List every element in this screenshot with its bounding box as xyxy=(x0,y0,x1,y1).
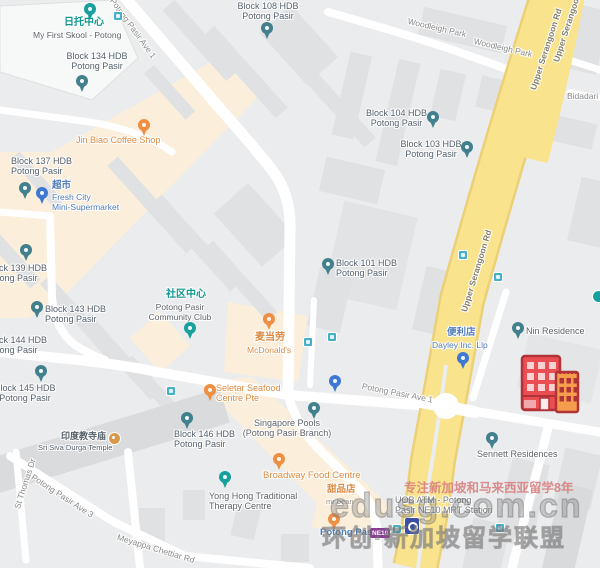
poi-fresh-city-cjk[interactable]: 超市 xyxy=(52,181,71,191)
pin-broadway-food-centre[interactable] xyxy=(273,453,285,465)
label-block-143[interactable]: Block 143 HDBPotong Pasir xyxy=(45,304,106,324)
pin-jin-biao-coffee-shop[interactable] xyxy=(138,119,150,131)
bus-stop-icon-2[interactable] xyxy=(458,250,468,260)
pin-community-club[interactable] xyxy=(184,322,196,334)
building-icon xyxy=(516,350,580,416)
poi-fresh-city-line1[interactable]: Fresh City xyxy=(52,192,91,202)
pin-my-first-skool[interactable] xyxy=(84,3,96,15)
poi-seletar-seafood[interactable]: Seletar SeafoodCentre Pte xyxy=(216,383,281,403)
bus-stop-icon-6[interactable] xyxy=(327,332,337,342)
label-block-146[interactable]: Block 146 HDBPotong Pasir xyxy=(174,429,235,449)
poi-jin-biao-coffee-shop[interactable]: Jin Biao Coffee Shop xyxy=(76,135,160,145)
poi-first-skool-name[interactable]: My First Skool - Potong xyxy=(33,30,121,40)
pin-block-108[interactable] xyxy=(261,22,273,34)
poi-broadway-food-centre[interactable]: Broadway Food Centre xyxy=(263,471,361,481)
pin-block-101[interactable] xyxy=(322,258,334,270)
bus-stop-icon-3[interactable] xyxy=(493,272,503,282)
poi-singapore-pools[interactable]: Singapore Pools(Potong Pasir Branch) xyxy=(241,418,333,438)
label-block-139[interactable]: Block 139 HDBPotong Pasir xyxy=(0,263,47,283)
poi-dayley-name[interactable]: Dayley Inc. Llp xyxy=(432,340,488,350)
pin-block-137[interactable] xyxy=(19,182,31,194)
label-block-144[interactable]: Block 144 HDBPotong Pasir xyxy=(0,335,47,355)
pin-fresh-city-supermarket[interactable] xyxy=(36,187,48,199)
pin-block-104[interactable] xyxy=(427,111,439,123)
poi-temple-cjk[interactable]: 印度教寺庙 xyxy=(61,431,106,441)
pin-dayley-convenience-store[interactable] xyxy=(457,352,469,364)
pin-seletar-seafood[interactable] xyxy=(204,384,216,396)
label-block-137[interactable]: Block 137 HDBPotong Pasir xyxy=(11,156,72,176)
poi-dayley-cjk[interactable]: 便利店 xyxy=(447,328,476,338)
watermark-domain: edusg.com.cn xyxy=(330,490,583,522)
bus-stop-icon-5[interactable] xyxy=(303,337,313,347)
poi-community-club-name[interactable]: Potong PasirCommunity Club xyxy=(145,302,215,322)
poi-temple-name[interactable]: Sri Siva Durga Temple xyxy=(38,443,112,453)
label-block-104[interactable]: Block 104 HDBPotong Pasir xyxy=(365,108,428,128)
pin-block-143[interactable] xyxy=(31,301,43,313)
label-block-103[interactable]: Block 103 HDBPotong Pasir xyxy=(400,139,462,159)
bus-stop-icon-4[interactable] xyxy=(166,386,176,396)
poi-sennett-residences[interactable]: Sennett Residences xyxy=(477,449,558,459)
map-canvas[interactable]: Potong Pasir Ave 1 Potong Pasir Ave 1 Wo… xyxy=(0,0,600,568)
pin-block-103[interactable] xyxy=(461,141,473,153)
pin-block-146[interactable] xyxy=(181,412,193,424)
poi-first-skool-cjk[interactable]: 日托中心 xyxy=(64,18,104,28)
pin-block-139[interactable] xyxy=(20,244,32,256)
watermark-brand: 环创·新加坡留学联盟 xyxy=(322,526,566,552)
pin-yong-hong-therapy[interactable] xyxy=(219,471,231,483)
label-block-134[interactable]: Block 134 HDBPotong Pasir xyxy=(66,51,128,71)
pin-block-134[interactable] xyxy=(76,75,88,87)
pin-mcdonalds[interactable] xyxy=(263,313,275,325)
property-building-marker[interactable] xyxy=(516,350,580,421)
pin-edge-partial[interactable] xyxy=(592,290,600,303)
label-block-108[interactable]: Block 108 HDBPotong Pasir xyxy=(236,1,300,21)
poi-yong-hong-therapy[interactable]: Yong Hong TraditionalTherapy Centre xyxy=(209,491,297,511)
poi-fresh-city-line2[interactable]: Mini-Supermarket xyxy=(52,202,119,212)
road-label-bidadari-park: Bidadari Pa xyxy=(567,91,600,101)
pin-nin-residence[interactable] xyxy=(512,322,524,334)
poi-community-club-cjk[interactable]: 社区中心 xyxy=(166,290,206,300)
hindu-temple-icon[interactable] xyxy=(108,432,121,445)
poi-mcdonalds-cjk[interactable]: 麦当劳 xyxy=(255,333,285,343)
label-block-101[interactable]: Block 101 HDBPotong Pasir xyxy=(336,258,397,278)
poi-mcdonalds-name[interactable]: McDonald's xyxy=(247,345,291,355)
pin-sennett-residences[interactable] xyxy=(486,432,498,444)
pin-atm-blue[interactable] xyxy=(329,375,341,387)
poi-nin-residence[interactable]: Nin Residence xyxy=(526,326,585,336)
bus-stop-icon-1[interactable] xyxy=(113,11,123,21)
label-block-145[interactable]: Block 145 HDBPotong Pasir xyxy=(0,383,56,403)
pin-singapore-pools[interactable] xyxy=(308,402,320,414)
pin-block-145[interactable] xyxy=(35,365,47,377)
